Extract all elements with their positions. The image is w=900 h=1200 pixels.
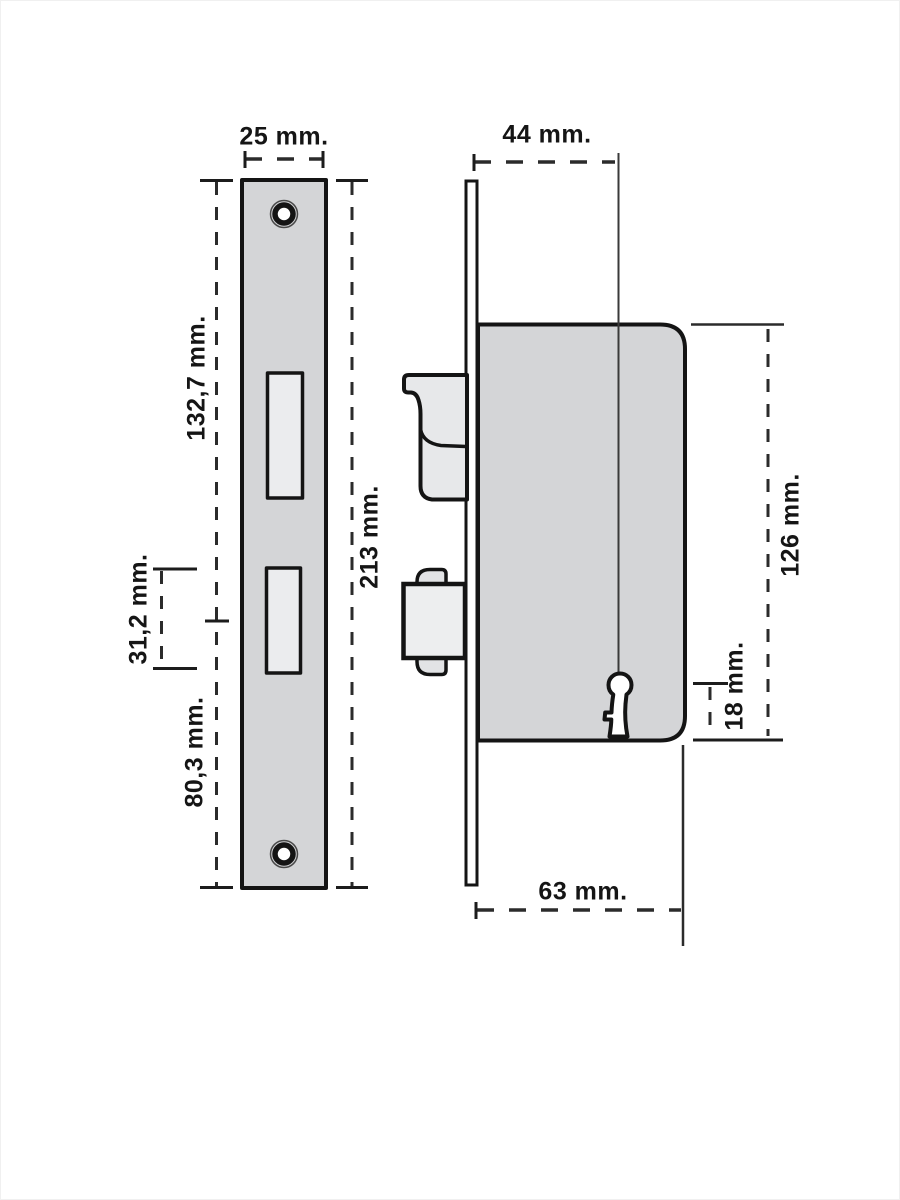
cutout-height-label: 31,2 mm.	[127, 553, 152, 664]
backset-label: 44 mm.	[502, 123, 591, 148]
strike-plate	[242, 180, 326, 888]
plate-upper-section-label: 132,7 mm.	[185, 315, 210, 440]
keyhole-offset-label: 18 mm.	[723, 641, 748, 730]
lock-case-body	[478, 325, 685, 741]
latch-bolt	[404, 375, 467, 500]
case-height-label: 126 mm.	[779, 473, 804, 577]
deadbolt-cutout	[267, 568, 301, 673]
faceplate	[466, 181, 477, 885]
screw-hole-top	[271, 201, 298, 228]
plate-total-height-label: 213 mm.	[358, 485, 383, 589]
plate-width-label: 25 mm.	[239, 125, 328, 150]
case-depth-label: 63 mm.	[538, 880, 627, 905]
deadbolt	[404, 584, 466, 658]
lock-dimension-diagram: 25 mm. 132,7 mm. 31,2 mm. 80,3 mm. 213 m…	[0, 0, 900, 1200]
screw-hole-bottom	[271, 841, 298, 868]
latch-cutout	[268, 373, 303, 498]
plate-lower-section-label: 80,3 mm.	[183, 696, 208, 807]
